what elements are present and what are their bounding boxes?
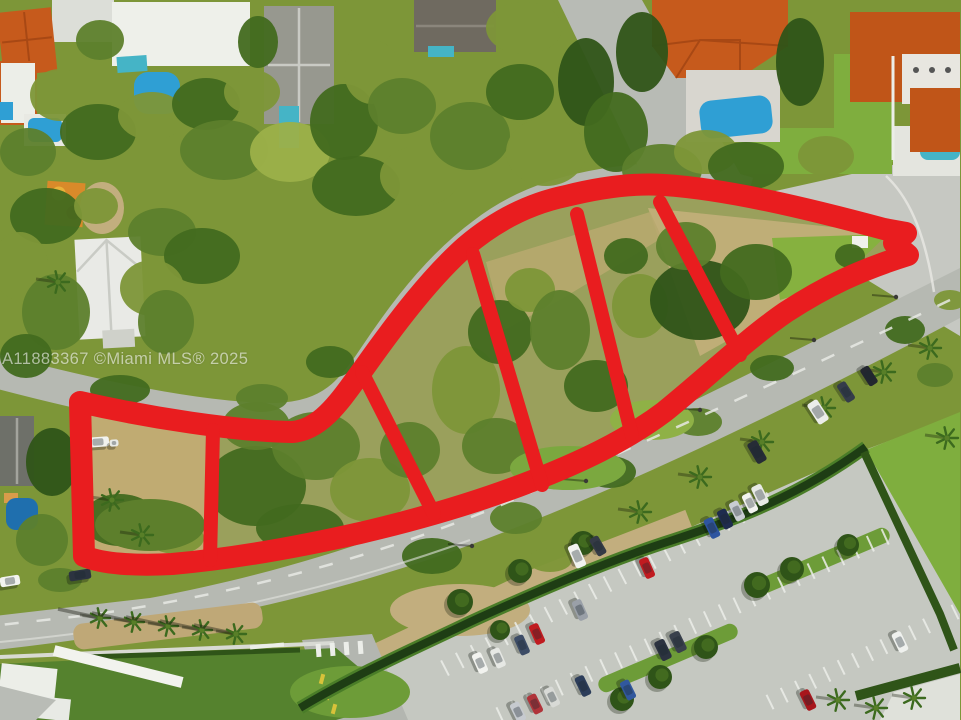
- light-pole: [584, 479, 588, 483]
- tree-blob: [16, 514, 68, 566]
- tree-crown: [752, 576, 766, 590]
- light-pole: [812, 338, 816, 342]
- aerial-photo: A11883367 ©Miami MLS® 2025: [0, 0, 961, 720]
- tree-blob: [402, 538, 462, 574]
- tree-blob: [885, 316, 925, 344]
- tree-blob: [506, 118, 586, 186]
- tree-crown: [515, 562, 528, 575]
- pool: [428, 46, 454, 57]
- tree-crown: [701, 638, 714, 651]
- tree-blob: [798, 136, 854, 176]
- tree-crown: [497, 623, 508, 634]
- tree-crown: [787, 560, 800, 573]
- tree-blob: [76, 20, 124, 60]
- light-pole: [894, 295, 898, 299]
- pool: [116, 55, 147, 73]
- tree-blob: [720, 244, 792, 300]
- tree-blob: [486, 2, 562, 54]
- tree-blob: [368, 78, 436, 134]
- tree-blob: [490, 502, 542, 534]
- tree-blob: [74, 188, 118, 224]
- tree-blob: [530, 290, 590, 370]
- parcel-divider: [210, 430, 213, 560]
- tree-blob: [604, 238, 648, 274]
- light-pole: [698, 408, 702, 412]
- tree-crown: [844, 537, 856, 549]
- tree-blob: [486, 64, 554, 120]
- tree-blob: [776, 18, 824, 106]
- tree-blob: [750, 355, 794, 381]
- tree-blob: [224, 70, 280, 114]
- tree-blob: [238, 16, 278, 68]
- tile-roof-house: [910, 88, 960, 152]
- pool: [0, 102, 13, 120]
- tree-blob: [138, 290, 194, 354]
- tree-blob: [528, 548, 572, 572]
- light-pole: [470, 544, 474, 548]
- tree-blob: [616, 12, 668, 92]
- watermark-text: A11883367 ©Miami MLS® 2025: [2, 350, 248, 369]
- tree-blob: [917, 363, 953, 387]
- tree-crown: [655, 668, 668, 681]
- tree-blob: [0, 128, 56, 176]
- tree-crown: [455, 593, 469, 607]
